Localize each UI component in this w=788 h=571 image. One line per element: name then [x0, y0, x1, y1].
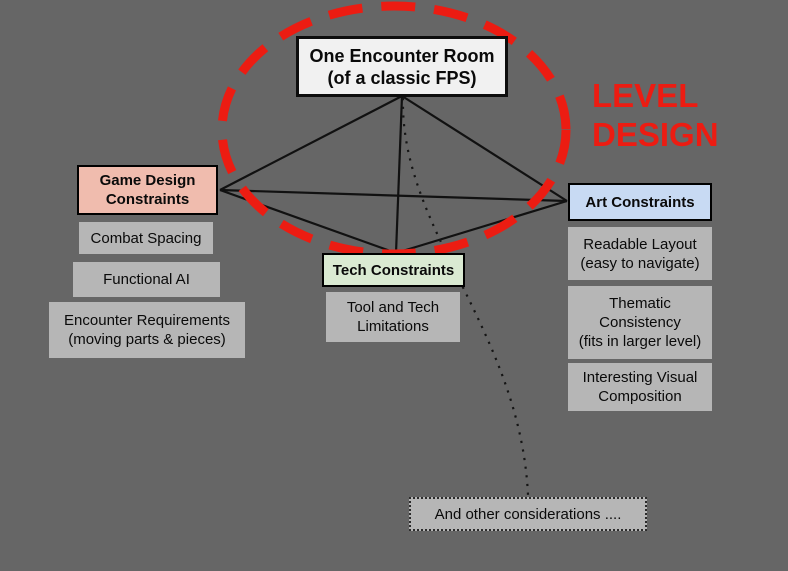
edge-center-gamedesign	[220, 96, 402, 190]
item-functional-ai: Functional AI	[73, 262, 220, 297]
edge-center-tech	[396, 96, 402, 253]
edge-gamedesign-art	[220, 190, 567, 201]
slide-canvas: One Encounter Room (of a classic FPS) LE…	[0, 0, 788, 571]
item-combat-spacing: Combat Spacing	[79, 222, 213, 254]
item-tool-and-tech-limitations: Tool and Tech Limitations	[326, 292, 460, 342]
tech-constraints-header: Tech Constraints	[322, 253, 465, 287]
item-thematic-consistency: Thematic Consistency (fits in larger lev…	[568, 286, 712, 359]
item-readable-layout: Readable Layout (easy to navigate)	[568, 227, 712, 280]
edge-tech-art	[396, 201, 567, 253]
game-design-constraints-header: Game Design Constraints	[77, 165, 218, 215]
edge-center-art	[402, 96, 567, 201]
level-design-label: LEVEL DESIGN	[592, 76, 719, 154]
art-constraints-header: Art Constraints	[568, 183, 712, 221]
center-node: One Encounter Room (of a classic FPS)	[296, 36, 508, 97]
item-interesting-visual-composition: Interesting Visual Composition	[568, 363, 712, 411]
item-encounter-requirements: Encounter Requirements (moving parts & p…	[49, 302, 245, 358]
other-considerations-node: And other considerations ....	[409, 497, 647, 531]
